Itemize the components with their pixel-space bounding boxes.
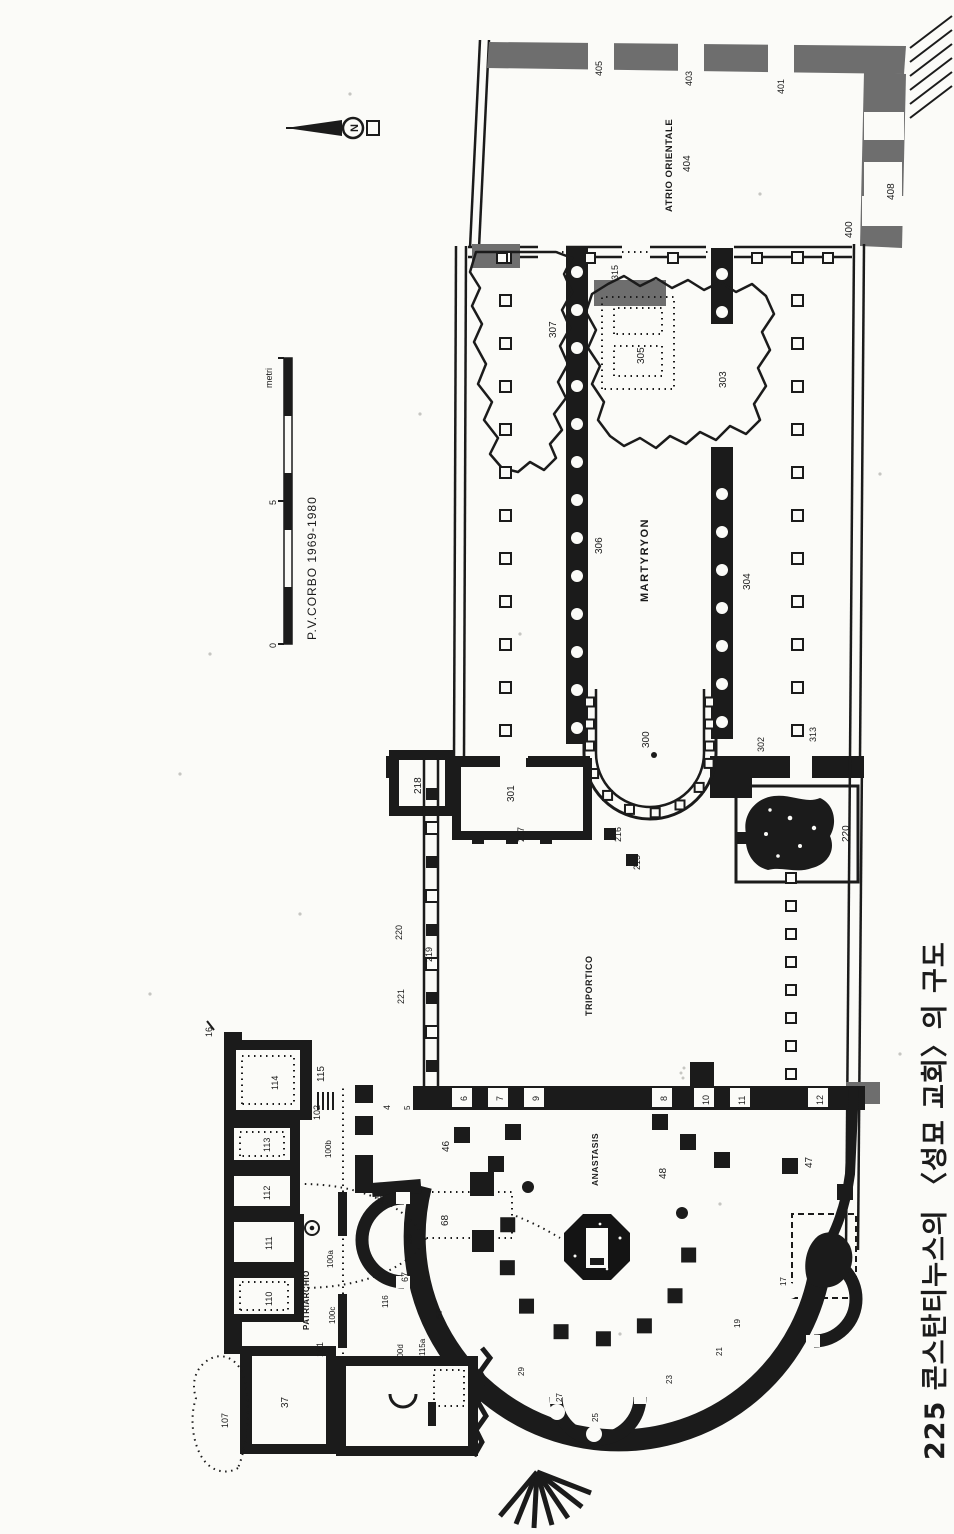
room-label-100d: 100d bbox=[396, 1344, 405, 1362]
scale-credit: P.V.CORBO 1969-1980 bbox=[305, 496, 319, 640]
room-label-100c: 100c bbox=[328, 1307, 337, 1324]
room-label-115a: 115a bbox=[418, 1338, 427, 1356]
room-label-400: 400 bbox=[844, 221, 855, 238]
room-label-307: 307 bbox=[548, 321, 559, 338]
room-label-5: 5 bbox=[403, 1105, 412, 1110]
room-label-112: 112 bbox=[262, 1186, 272, 1200]
room-label-216: 216 bbox=[613, 827, 623, 842]
floor-plan-svg: ATRIO ORIENTALE bbox=[0, 0, 954, 1534]
room-label-17: 17 bbox=[779, 1277, 788, 1286]
room-label-301: 301 bbox=[506, 785, 517, 802]
triportico-label: TRIPORTICO bbox=[584, 956, 594, 1017]
compass-n: N bbox=[349, 124, 361, 132]
room-label-221: 221 bbox=[396, 989, 406, 1004]
atrium-label: ATRIO ORIENTALE bbox=[664, 119, 675, 212]
room-label-29: 29 bbox=[517, 1367, 526, 1376]
room-label-7: 7 bbox=[495, 1096, 505, 1101]
room-label-11: 11 bbox=[737, 1096, 747, 1105]
room-label-39: 39 bbox=[404, 1234, 414, 1244]
room-label-303: 303 bbox=[718, 371, 729, 388]
room-label-21: 21 bbox=[715, 1347, 724, 1356]
room-label-23: 23 bbox=[665, 1375, 674, 1384]
room-label-115: 115 bbox=[316, 1066, 327, 1082]
room-label-102: 102 bbox=[312, 1105, 322, 1120]
room-label-302: 302 bbox=[756, 737, 766, 752]
room-label-304: 304 bbox=[742, 573, 753, 590]
room-label-8: 8 bbox=[659, 1096, 669, 1101]
room-label-110: 110 bbox=[264, 1292, 274, 1306]
room-label-111: 111 bbox=[264, 1236, 274, 1250]
room-label-12: 12 bbox=[815, 1095, 825, 1105]
edicule-tomb bbox=[564, 1214, 630, 1280]
room-label-220: 220 bbox=[394, 925, 404, 940]
room-label-16: 16 bbox=[204, 1027, 214, 1037]
scale-tick-0: 0 bbox=[268, 643, 278, 648]
room-label-100a: 100a bbox=[326, 1250, 335, 1268]
room-label-300: 300 bbox=[641, 731, 652, 748]
room-label-67: 67 bbox=[400, 1272, 410, 1282]
wall-315 bbox=[594, 280, 666, 306]
room-label-107: 107 bbox=[220, 1413, 230, 1428]
room-label-100b: 100b bbox=[324, 1140, 333, 1158]
room-label-48: 48 bbox=[658, 1167, 669, 1179]
room-label-401: 401 bbox=[776, 79, 786, 94]
room-label-215: 215 bbox=[632, 855, 642, 870]
room-label-403: 403 bbox=[684, 71, 694, 86]
room-label-404: 404 bbox=[682, 155, 693, 172]
numbered-door-wall bbox=[413, 1086, 865, 1110]
room-label-218: 218 bbox=[413, 777, 424, 794]
room-label-315: 315 bbox=[610, 265, 620, 280]
room-label-219: 219 bbox=[424, 947, 434, 962]
room-label-405: 405 bbox=[594, 61, 604, 76]
room-label-116: 116 bbox=[381, 1295, 390, 1308]
rotunda-label: ANASTASIS bbox=[590, 1133, 600, 1186]
room-label-25: 25 bbox=[591, 1413, 600, 1422]
scanned-plan-page: ATRIO ORIENTALE bbox=[0, 0, 954, 1534]
room-label-220: 220 bbox=[841, 825, 852, 842]
basilica-label: MARTYRYON bbox=[639, 518, 651, 602]
room-label-47: 47 bbox=[804, 1156, 815, 1168]
room-label-114: 114 bbox=[270, 1076, 280, 1090]
room-label-6: 6 bbox=[459, 1096, 469, 1101]
room-label-37: 37 bbox=[280, 1396, 291, 1408]
scale-unit: metri bbox=[264, 368, 274, 388]
room-label-217: 217 bbox=[516, 827, 526, 842]
room-label-68: 68 bbox=[440, 1214, 451, 1226]
patriarchate-label: PATRIARCHIO bbox=[302, 1270, 311, 1330]
room-label-27: 27 bbox=[555, 1393, 564, 1402]
room-label-101: 101 bbox=[315, 1342, 325, 1357]
room-label-313: 313 bbox=[808, 727, 818, 742]
calvary-rock-220 bbox=[745, 796, 834, 871]
room-label-4: 4 bbox=[382, 1105, 392, 1110]
room-label-9: 9 bbox=[531, 1096, 541, 1101]
room-label-305: 305 bbox=[636, 347, 647, 364]
room-label-43: 43 bbox=[376, 1195, 386, 1205]
room-label-19: 19 bbox=[733, 1319, 742, 1328]
room-label-46: 46 bbox=[441, 1140, 452, 1152]
scale-tick-5: 5 bbox=[268, 500, 278, 505]
room-label-408: 408 bbox=[886, 183, 897, 200]
room-label-10: 10 bbox=[701, 1095, 711, 1105]
room-label-306: 306 bbox=[594, 537, 605, 554]
figure-caption: 225 콘스탄티누스의 〈성묘 교회〉의 구도 bbox=[920, 941, 951, 1460]
room-label-57: 57 bbox=[434, 1309, 444, 1319]
room-label-113: 113 bbox=[262, 1138, 272, 1152]
